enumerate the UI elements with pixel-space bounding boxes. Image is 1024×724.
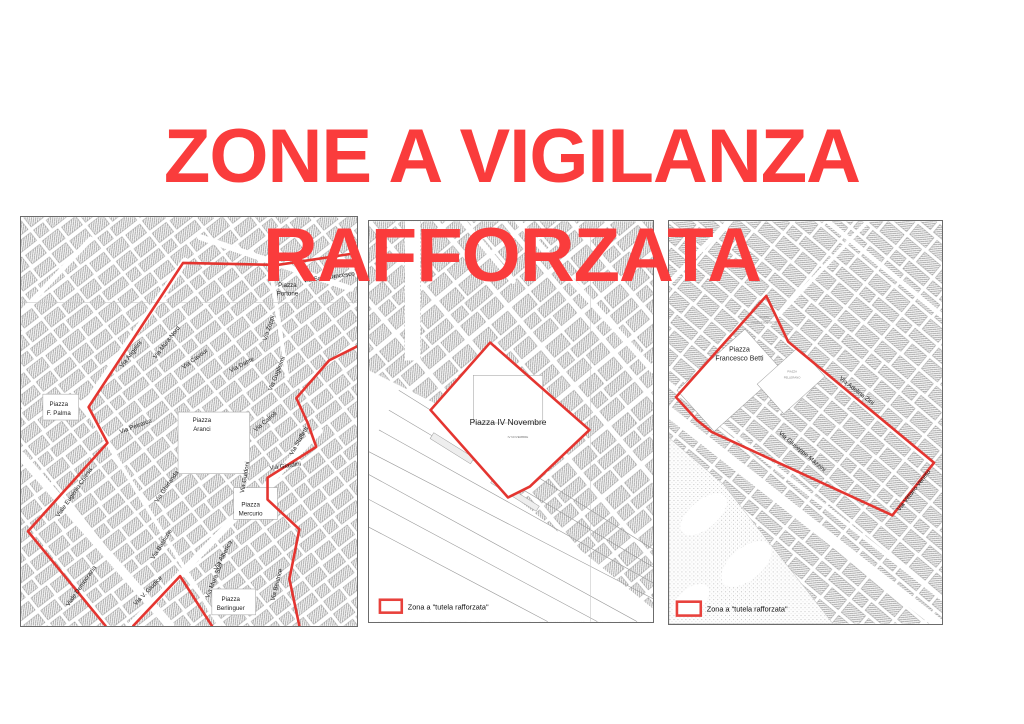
map-left-svg: Via AngeliniVia Mura NordVia ZoppiVia Ca… (21, 217, 357, 626)
map-label: F. Palma (47, 410, 72, 417)
map-label: Portone (277, 291, 299, 298)
map-label: Piazza (278, 282, 297, 289)
map-label: Piazza (729, 347, 750, 354)
title-line-1: ZONE A VIGILANZA (164, 114, 860, 199)
map-label: Piazza IV Novembre (470, 417, 547, 427)
map-label: Berlinguer (217, 605, 245, 612)
map-label: Francesco Betti (715, 355, 764, 362)
legend-swatch (677, 602, 701, 616)
map-label: Mercurio (239, 510, 264, 517)
map-label: FRANCESCO BETTI (751, 321, 777, 325)
map-center-svg: Piazza IV NovembreIV NOVEMBRE Zona a "tu… (369, 221, 653, 622)
map-label: Piazza (193, 417, 212, 424)
legend-swatch (380, 600, 402, 613)
poster-zone-vigilanza: ZONE A VIGILANZARAFFORZATA (0, 0, 1024, 724)
map-left-centro-storico: Via AngeliniVia Mura NordVia ZoppiVia Ca… (20, 216, 358, 627)
legend-label: Zona a "tutela rafforzata" (408, 603, 489, 612)
map-label: IV NOVEMBRE (508, 435, 529, 439)
legend-label: Zona a "tutela rafforzata" (707, 605, 788, 614)
map-label: Piazza (241, 501, 260, 508)
map-label: Piazza (222, 596, 241, 603)
map-center-piazza-iv-novembre: Piazza IV NovembreIV NOVEMBRE Zona a "tu… (368, 220, 654, 623)
map-label: PIAZZA (787, 369, 797, 373)
legend: Zona a "tutela rafforzata" (677, 602, 788, 616)
map-label: PIAZZA (759, 315, 769, 319)
map-right-svg: PiazzaFrancesco BettiPIAZZAFRANCESCO BET… (669, 221, 942, 624)
map-label: Piazza (50, 401, 69, 408)
map-label: PELLERANO (784, 375, 801, 379)
map-label: Aranci (193, 426, 210, 433)
map-right-piazza-betti: PiazzaFrancesco BettiPIAZZAFRANCESCO BET… (668, 220, 943, 625)
